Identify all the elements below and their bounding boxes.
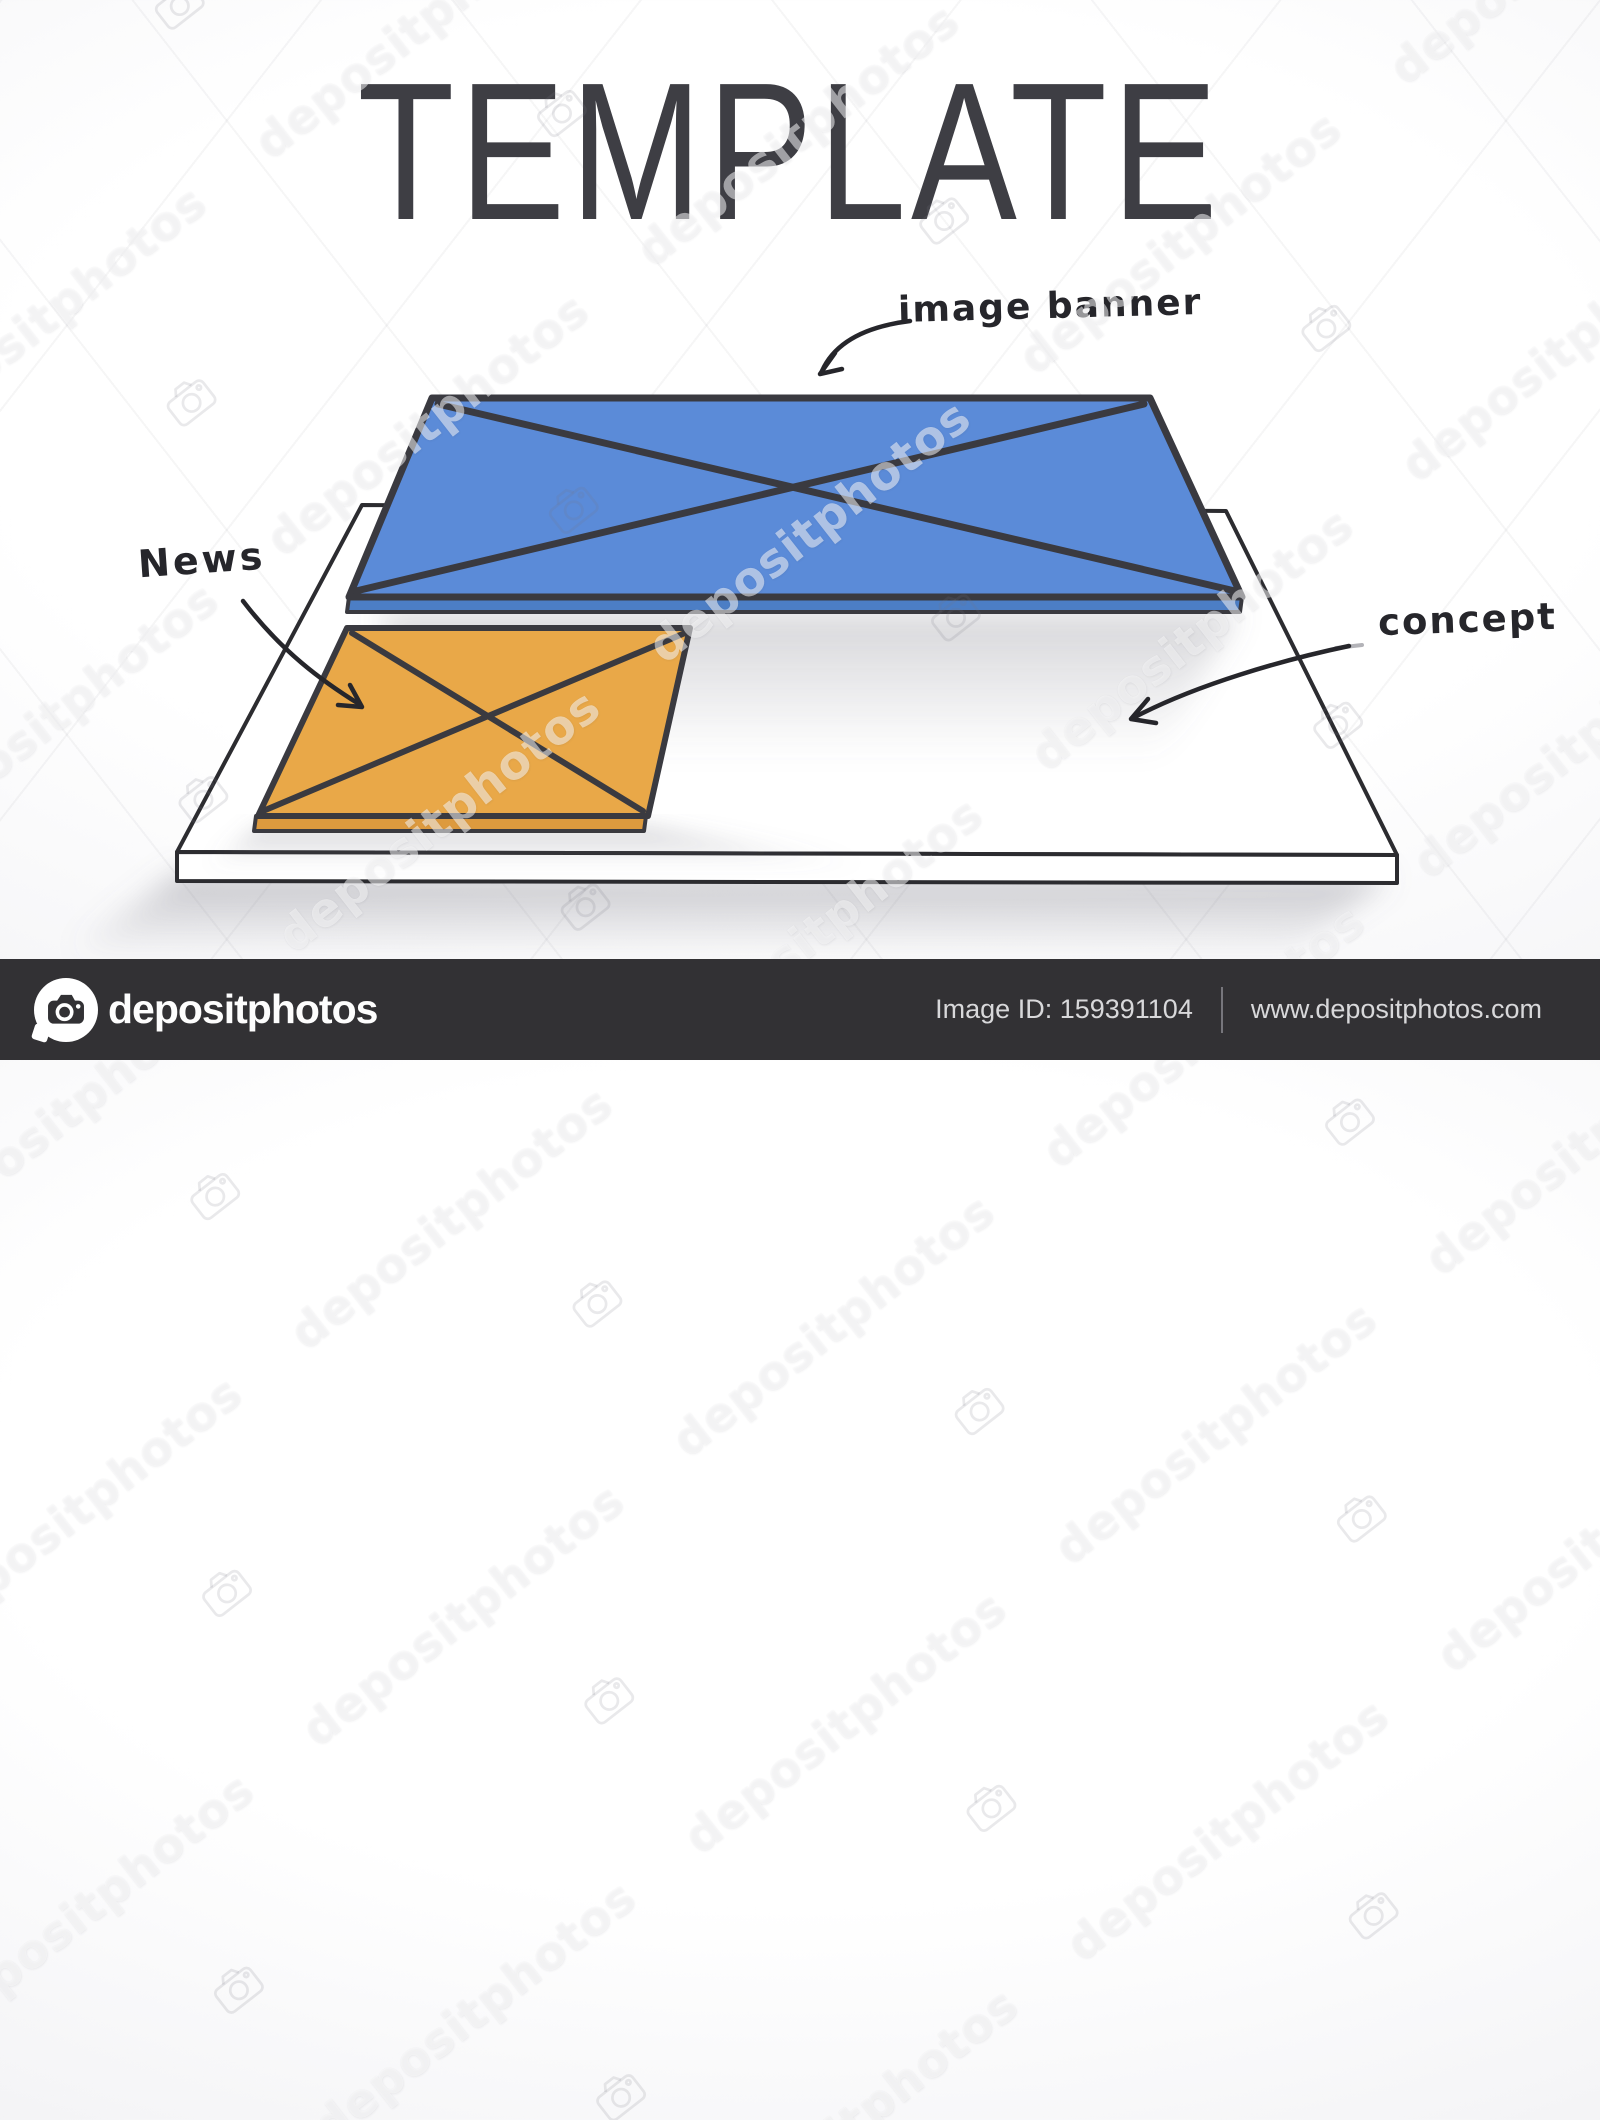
watermark-text: depositphotos: [0, 1762, 265, 2047]
watermark-text: depositphotos: [0, 1365, 253, 1650]
banner-face: [349, 398, 1242, 597]
camera-watermark-icon: [945, 1374, 1013, 1441]
camera-watermark-icon: [575, 1664, 643, 1731]
camera-glyph: [43, 987, 89, 1033]
camera-watermark-icon: [193, 1556, 261, 1623]
camera-watermark-icon: [1316, 1085, 1384, 1152]
board-shadow: [70, 872, 1390, 958]
camera-watermark-icon: [1328, 1482, 1396, 1549]
watermark-text: depositphotos: [1044, 1290, 1388, 1575]
watermark-text: depositphotos: [291, 1472, 635, 1757]
label-concept: concept: [1377, 595, 1557, 644]
depositphotos-logo: depositphotos: [34, 978, 377, 1042]
arrow-to-image-banner: [822, 321, 910, 371]
camera-watermark-icon: [563, 1267, 631, 1334]
watermark-text: depositphotos: [662, 1183, 1006, 1468]
page-title: TEMPLATE: [357, 54, 1222, 250]
watermark-text: depositphotos: [685, 1977, 1029, 2120]
watermark-text: depositphotos: [673, 1580, 1017, 1865]
label-image-banner: image banner: [898, 282, 1203, 331]
footer-bar: depositphotos Image ID: 159391104 www.de…: [0, 959, 1600, 1060]
image-banner-placeholder: [347, 398, 1242, 612]
image-id-text: Image ID: 159391104: [935, 994, 1193, 1025]
camera-watermark-icon: [1339, 1879, 1407, 1946]
camera-watermark-icon: [957, 1771, 1025, 1838]
footer-divider: [1221, 987, 1223, 1033]
watermark-text: depositphotos: [279, 1075, 623, 1360]
camera-logo-icon: [34, 978, 98, 1042]
watermark-text: depositphotos: [1056, 1687, 1400, 1972]
watermark-text: depositphotos: [1426, 1398, 1600, 1683]
website-text: www.depositphotos.com: [1251, 994, 1542, 1025]
arrow-to-image-banner-head: [820, 353, 842, 374]
brand-name: depositphotos: [108, 986, 377, 1033]
watermark-text: depositphotos: [303, 1869, 647, 2120]
camera-watermark-icon: [205, 1953, 273, 2020]
camera-watermark-icon: [587, 2060, 655, 2120]
footer-info: Image ID: 159391104 www.depositphotos.co…: [935, 987, 1542, 1033]
camera-watermark-icon: [181, 1159, 249, 1226]
label-news: News: [137, 534, 267, 587]
